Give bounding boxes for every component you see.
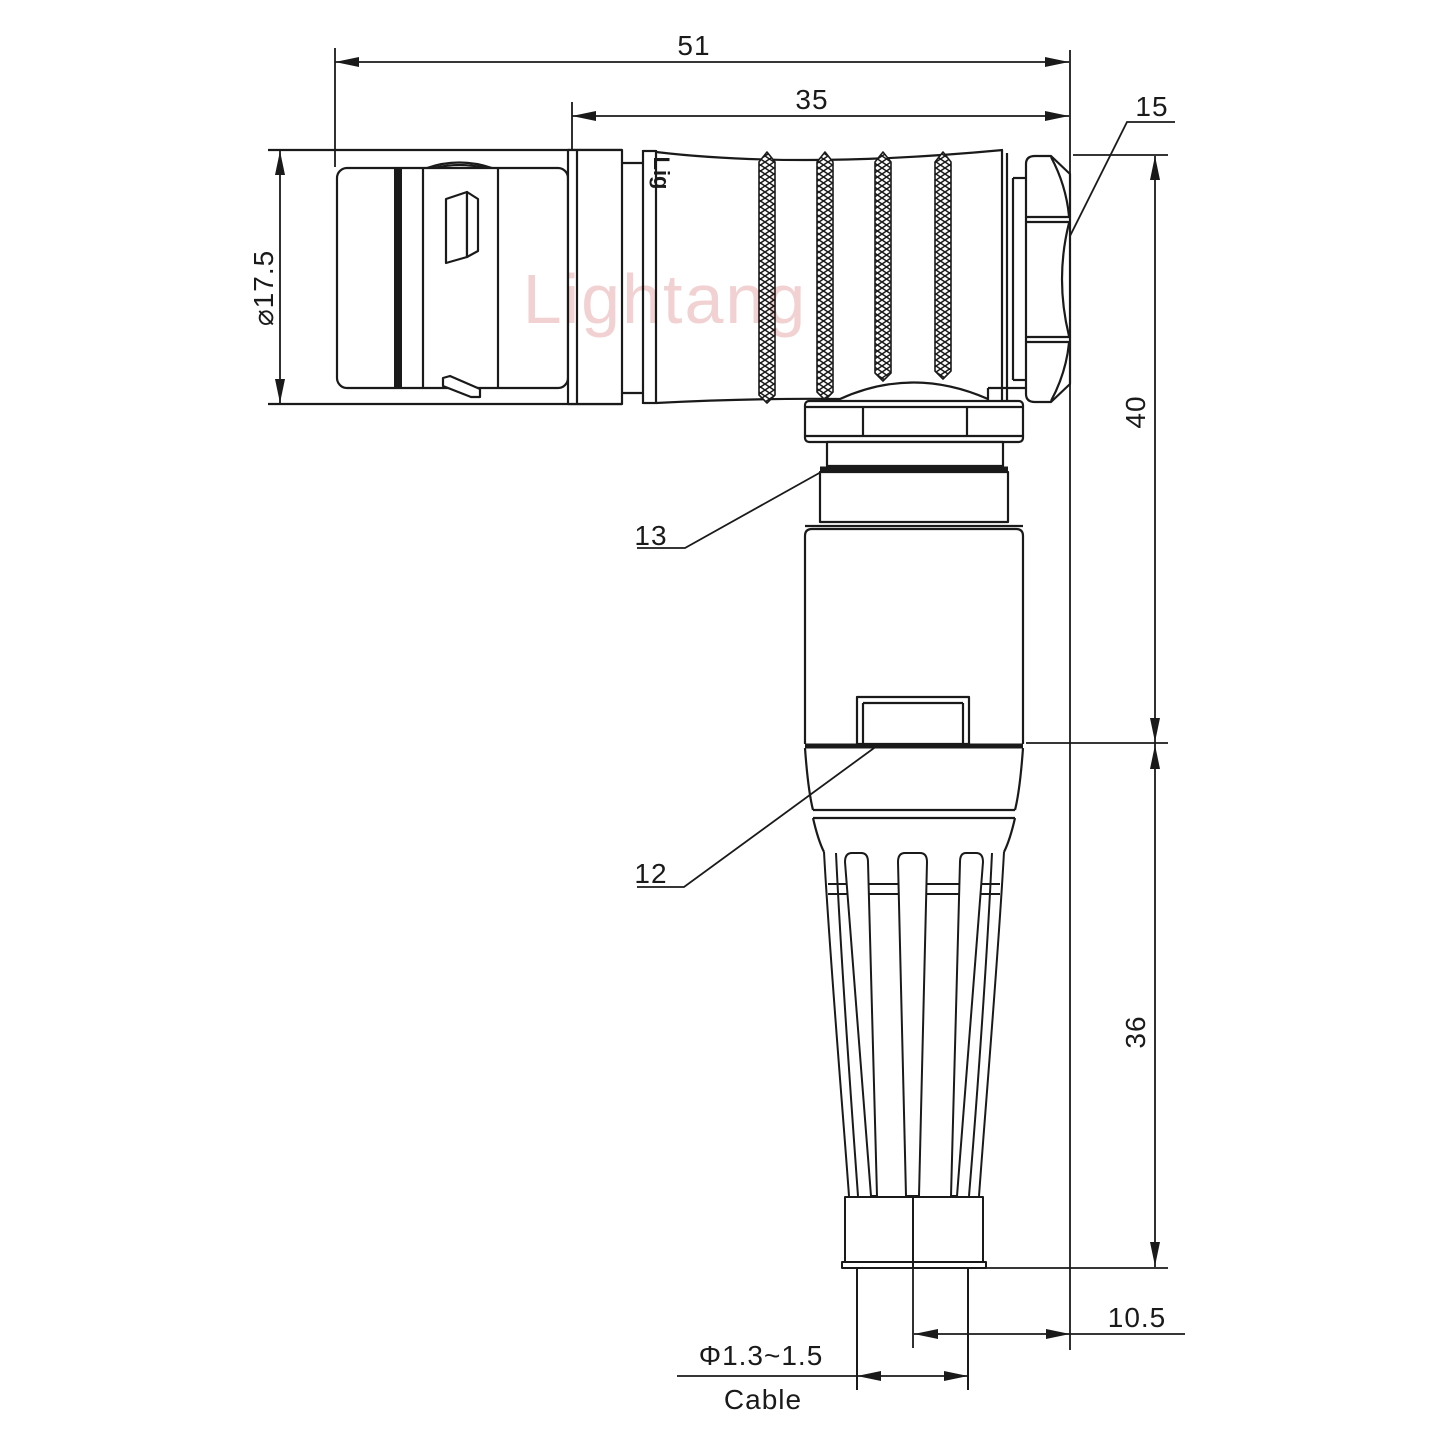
dim-rear-body-length: 35 xyxy=(795,86,828,114)
technical-drawing-canvas: 51 35 15 ⌀17.5 40 36 10.5 Φ1.3~1.5 Cable… xyxy=(0,0,1440,1440)
body-marking-text: Lig xyxy=(650,157,672,190)
dim-elbow-height-upper: 40 xyxy=(1122,395,1150,428)
dim-strain-relief-height: 36 xyxy=(1122,1015,1150,1048)
dim-overall-length: 51 xyxy=(677,32,710,60)
elbow-body xyxy=(805,401,1023,852)
connector-line-art xyxy=(0,0,1440,1440)
hex-nut xyxy=(1026,156,1070,402)
strain-relief-fingers xyxy=(824,852,1004,1390)
dim-cable-offset: 10.5 xyxy=(1108,1304,1167,1332)
dim-cable-diameter: Φ1.3~1.5 xyxy=(699,1342,824,1370)
dim-front-diameter: ⌀17.5 xyxy=(250,250,278,326)
ref-label-13: 13 xyxy=(634,522,667,550)
cable-label: Cable xyxy=(724,1386,802,1414)
ref-label-12: 12 xyxy=(634,860,667,888)
ref-label-15: 15 xyxy=(1135,93,1168,121)
watermark-text: Lightang xyxy=(523,259,808,339)
